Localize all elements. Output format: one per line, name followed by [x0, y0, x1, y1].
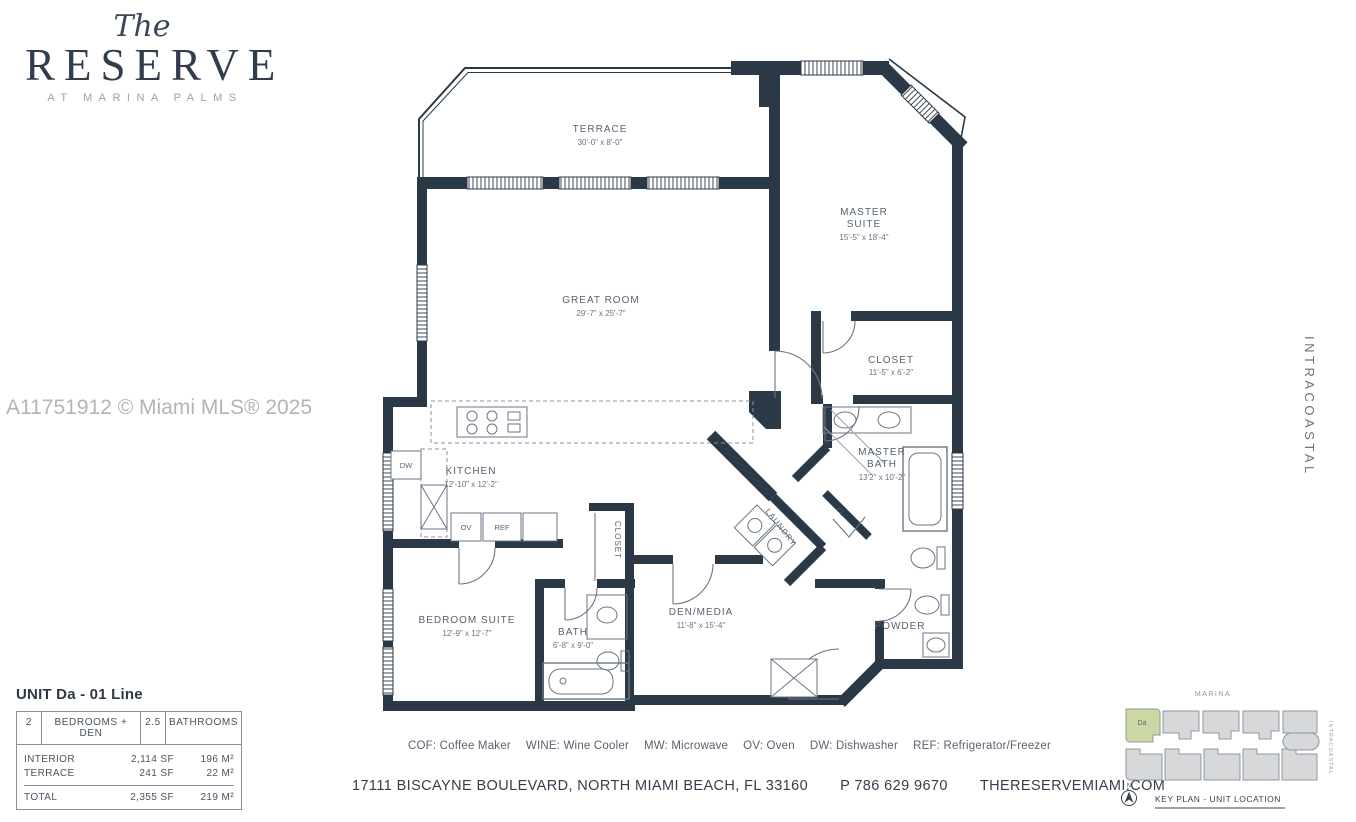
unit-table-header: 2 BEDROOMS + DEN 2.5 BATHROOMS	[17, 712, 241, 745]
bedrooms-count: 2	[17, 712, 42, 744]
unit-table: 2 BEDROOMS + DEN 2.5 BATHROOMS INTERIOR …	[16, 711, 242, 810]
row-sf: 2,355 SF	[96, 792, 174, 803]
label-ref: REF	[495, 523, 510, 532]
appliance-legend: COF: Coffee Maker WINE: Wine Cooler MW: …	[408, 740, 1051, 752]
row-sf: 2,114 SF	[96, 754, 174, 765]
keyplan-unit-da-label: Da	[1138, 720, 1147, 727]
north-compass-icon: N	[1122, 783, 1137, 806]
dims-closet: 11'-5" x 6'-2"	[869, 368, 913, 377]
keyplan-marina-label: MARINA	[1195, 691, 1231, 698]
room-labels: TERRACE 30'-0" x 8'-0" MASTER SUITE 15'-…	[400, 124, 926, 650]
dims-bath: 6'-8" x 9'-0"	[553, 641, 593, 650]
label-kitchen: KITCHEN	[446, 466, 497, 477]
compass-n-label: N	[1127, 783, 1131, 789]
row-m2: 196 M²	[174, 754, 234, 765]
legend-item-cof: COF: Coffee Maker	[408, 740, 511, 752]
phone: P 786 629 9670	[840, 778, 948, 794]
intracoastal-label: INTRACOASTAL	[1302, 336, 1317, 477]
floorplan-drawing: TERRACE 30'-0" x 8'-0" MASTER SUITE 15'-…	[375, 55, 985, 725]
logo-name: RESERVE	[16, 42, 268, 89]
bathrooms-count: 2.5	[141, 712, 166, 744]
legend-item-ref: REF: Refrigerator/Freezer	[913, 740, 1051, 752]
label-terrace: TERRACE	[573, 124, 628, 135]
row-sf: 241 SF	[96, 768, 174, 779]
dims-terrace: 30'-0" x 8'-0"	[578, 138, 623, 147]
dims-bedroom-suite: 12'-9" x 12'-7"	[442, 629, 491, 638]
row-label: INTERIOR	[24, 754, 96, 765]
label-dw: DW	[400, 461, 413, 470]
label-den-media: DEN/MEDIA	[669, 607, 734, 618]
label-closet-hall: CLOSET	[613, 521, 622, 559]
bathrooms-label: BATHROOMS	[166, 712, 241, 744]
unit-info-panel: UNIT Da - 01 Line 2 BEDROOMS + DEN 2.5 B…	[16, 686, 242, 810]
key-plan: MARINA Da INTRACOASTAL N KEY PLAN - UNIT…	[1113, 683, 1348, 818]
label-master-bath-1: MASTER	[858, 447, 906, 458]
address: 17111 BISCAYNE BOULEVARD, NORTH MIAMI BE…	[352, 778, 808, 794]
footer-contact: 17111 BISCAYNE BOULEVARD, NORTH MIAMI BE…	[352, 778, 1165, 794]
brand-logo: The RESERVE AT MARINA PALMS	[16, 12, 268, 104]
master-bath-fixtures	[823, 407, 947, 569]
row-label: TERRACE	[24, 768, 96, 779]
table-divider	[24, 785, 234, 786]
dims-great-room: 29'-7" x 25'-7"	[576, 309, 625, 318]
label-master-suite-1: MASTER	[840, 207, 888, 218]
unit-table-body: INTERIOR 2,114 SF 196 M² TERRACE 241 SF …	[17, 745, 241, 809]
legend-item-wine: WINE: Wine Cooler	[526, 740, 629, 752]
label-bedroom-suite: BEDROOM SUITE	[419, 615, 516, 626]
den-closet-box	[771, 659, 817, 697]
legend-item-dw: DW: Dishwasher	[810, 740, 898, 752]
row-label: TOTAL	[24, 792, 96, 803]
logo-tagline: AT MARINA PALMS	[16, 92, 268, 104]
table-row-total: TOTAL 2,355 SF 219 M²	[24, 790, 234, 804]
row-m2: 22 M²	[174, 768, 234, 779]
legend-item-ov: OV: Oven	[743, 740, 795, 752]
keyplan-units	[1126, 709, 1319, 780]
mls-watermark: A11751912 © Miami MLS® 2025	[6, 396, 312, 420]
label-master-suite-2: SUITE	[847, 219, 881, 230]
label-great-room: GREAT ROOM	[562, 295, 639, 306]
legend-item-mw: MW: Microwave	[644, 740, 728, 752]
keyplan-intracoastal-label: INTRACOASTAL	[1327, 721, 1333, 775]
label-bath: BATH	[558, 627, 588, 638]
dims-master-bath: 13'2" x 10'-2"	[859, 473, 906, 482]
dims-master-suite: 15'-5" x 18'-4"	[839, 233, 888, 242]
table-row-terrace: TERRACE 241 SF 22 M²	[24, 766, 234, 780]
terrace-railing	[419, 59, 965, 179]
dims-kitchen: 12'-10" x 12'-2"	[444, 480, 498, 489]
bedrooms-label: BEDROOMS + DEN	[42, 712, 141, 744]
logo-script-the: The	[16, 12, 268, 42]
dims-den-media: 11'-8" x 15'-4"	[677, 621, 726, 630]
label-ov: OV	[461, 523, 472, 532]
label-master-bath-2: BATH	[867, 459, 897, 470]
label-closet: CLOSET	[868, 355, 914, 366]
label-powder: POWDER	[875, 621, 926, 632]
keyplan-caption: KEY PLAN - UNIT LOCATION	[1155, 794, 1281, 804]
table-row-interior: INTERIOR 2,114 SF 196 M²	[24, 752, 234, 766]
unit-title: UNIT Da - 01 Line	[16, 686, 242, 703]
row-m2: 219 M²	[174, 792, 234, 803]
